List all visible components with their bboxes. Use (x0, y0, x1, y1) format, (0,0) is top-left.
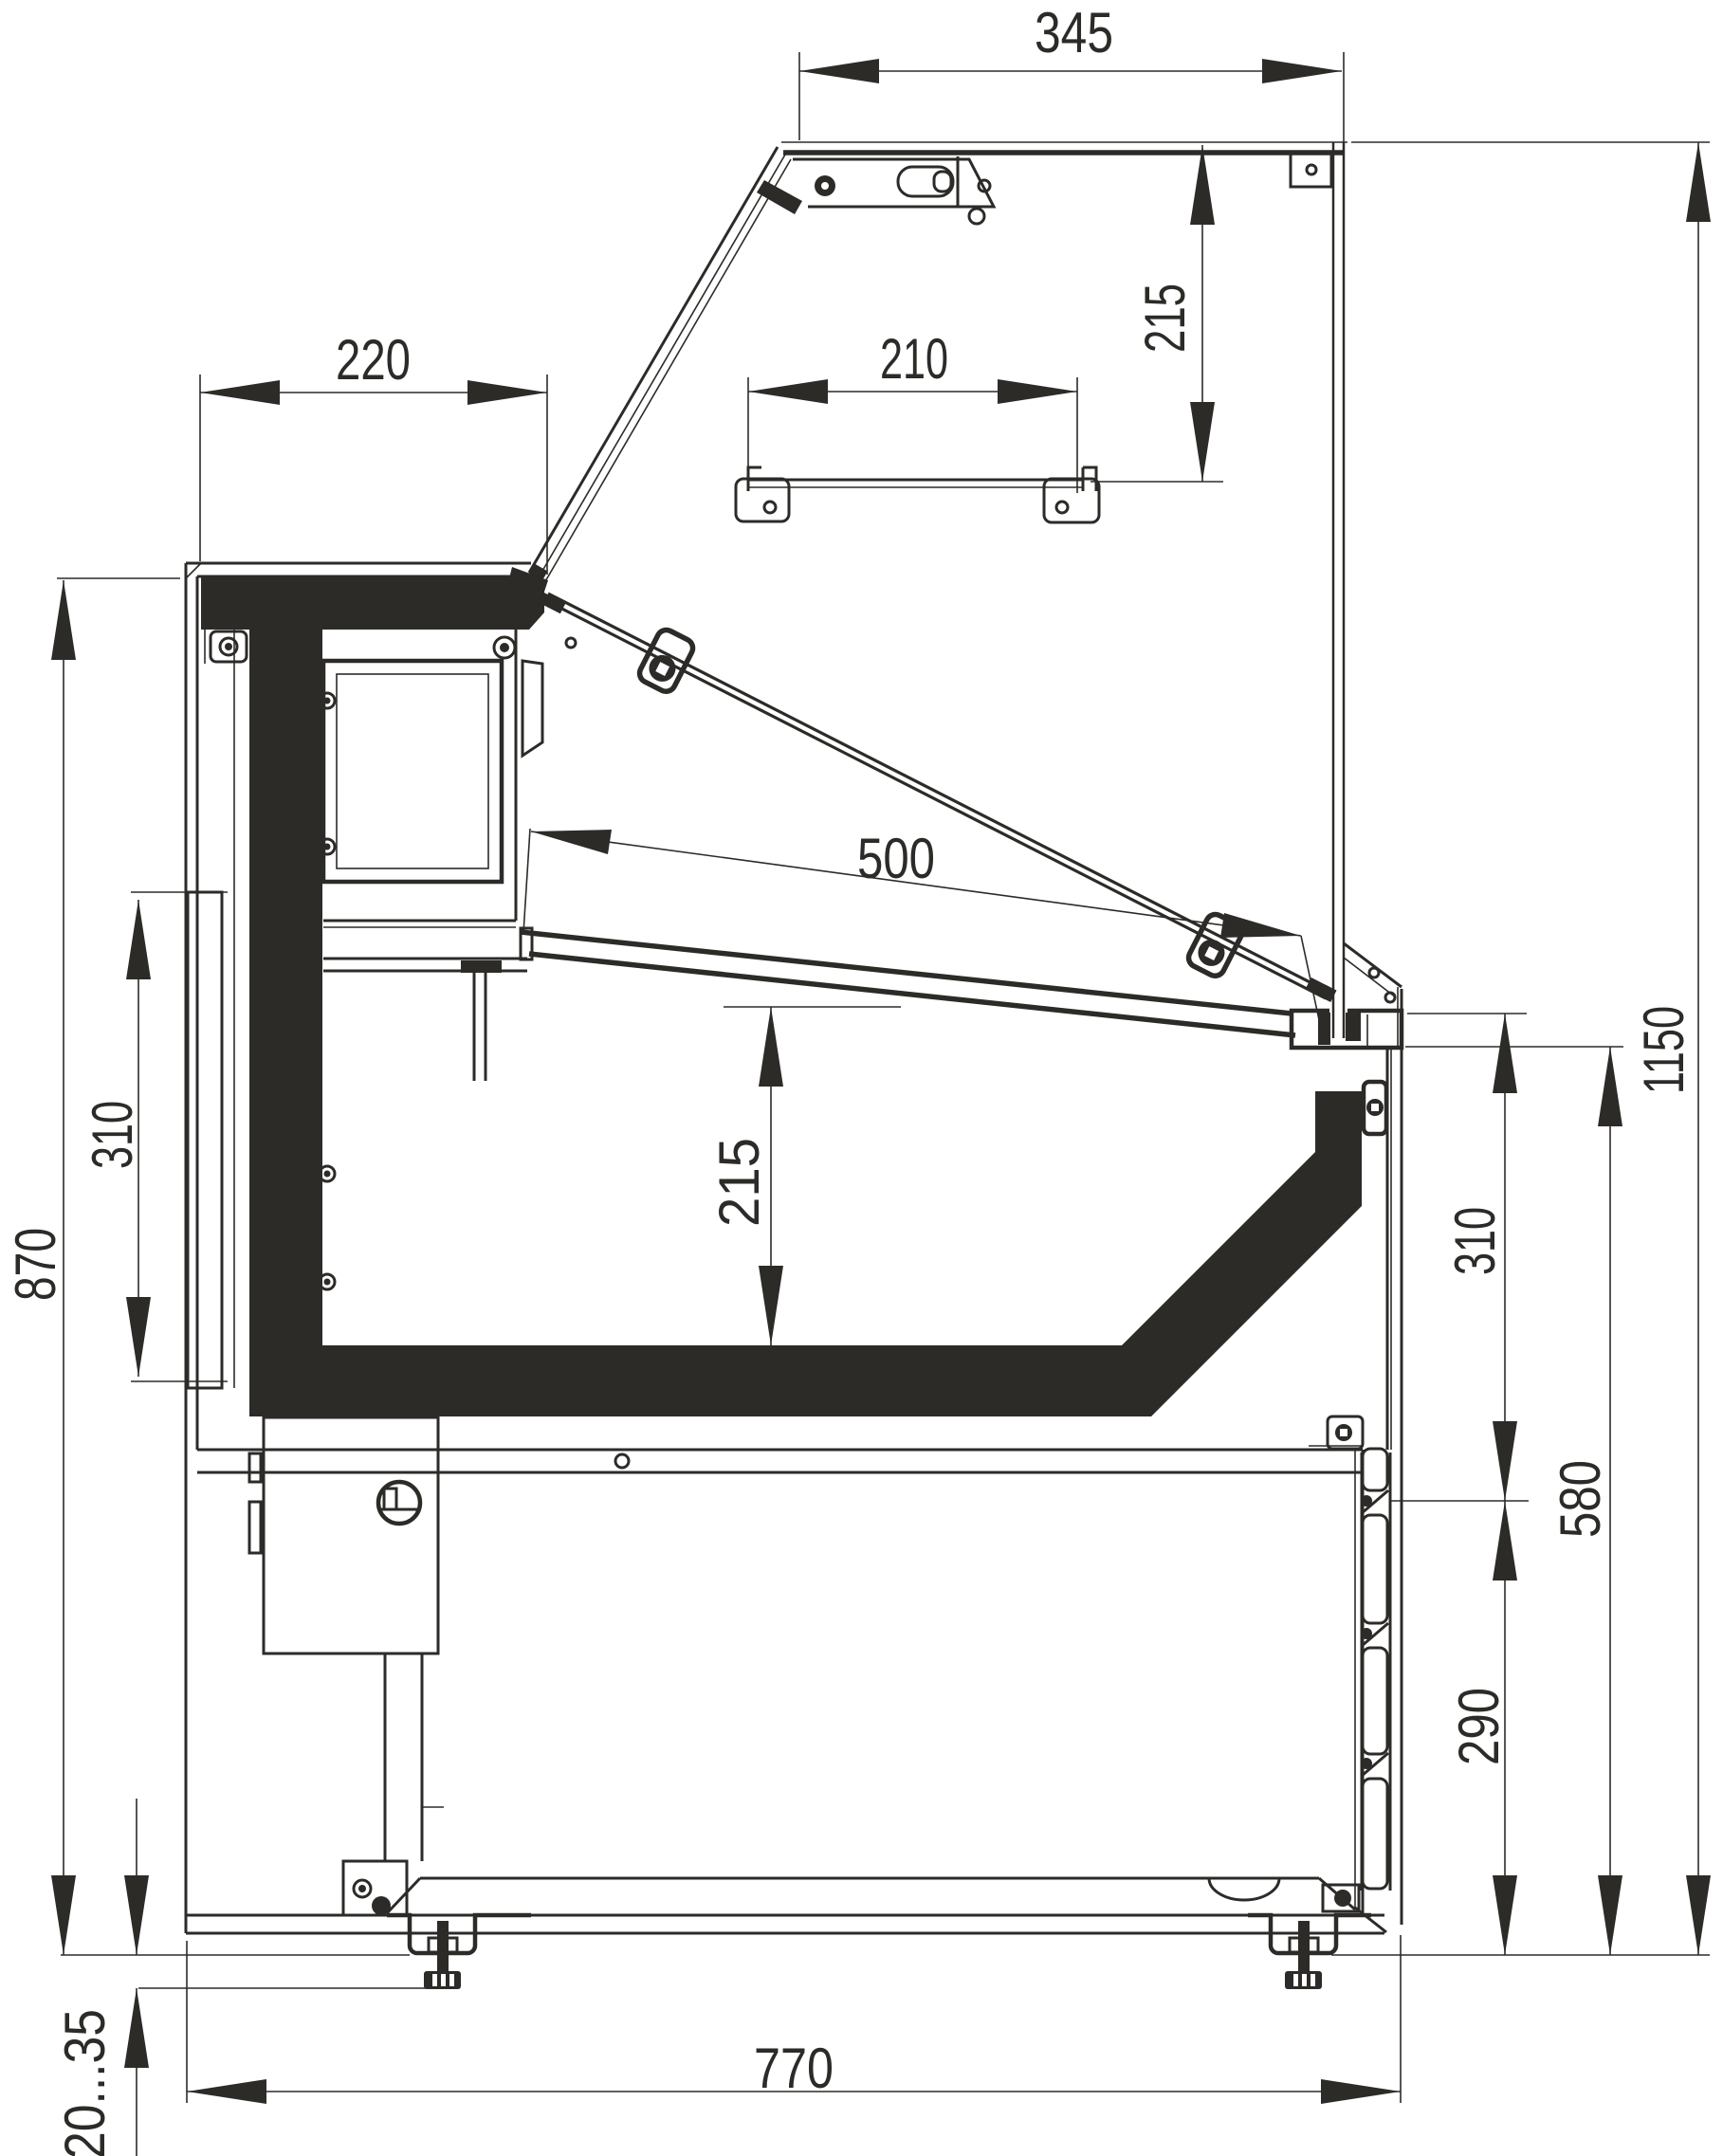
svg-text:1150: 1150 (1632, 1006, 1696, 1094)
svg-text:500: 500 (857, 827, 935, 890)
svg-text:870: 870 (4, 1228, 67, 1301)
svg-text:220: 220 (336, 328, 411, 392)
svg-text:20...35: 20...35 (53, 2009, 117, 2156)
svg-text:310: 310 (81, 1101, 144, 1169)
svg-text:210: 210 (880, 327, 948, 391)
svg-text:290: 290 (1447, 1688, 1511, 1765)
svg-text:770: 770 (754, 2037, 834, 2100)
svg-text:345: 345 (1035, 1, 1113, 64)
svg-text:580: 580 (1549, 1460, 1612, 1538)
svg-text:310: 310 (1443, 1207, 1507, 1275)
svg-text:215: 215 (707, 1138, 771, 1227)
svg-text:215: 215 (1133, 283, 1197, 353)
